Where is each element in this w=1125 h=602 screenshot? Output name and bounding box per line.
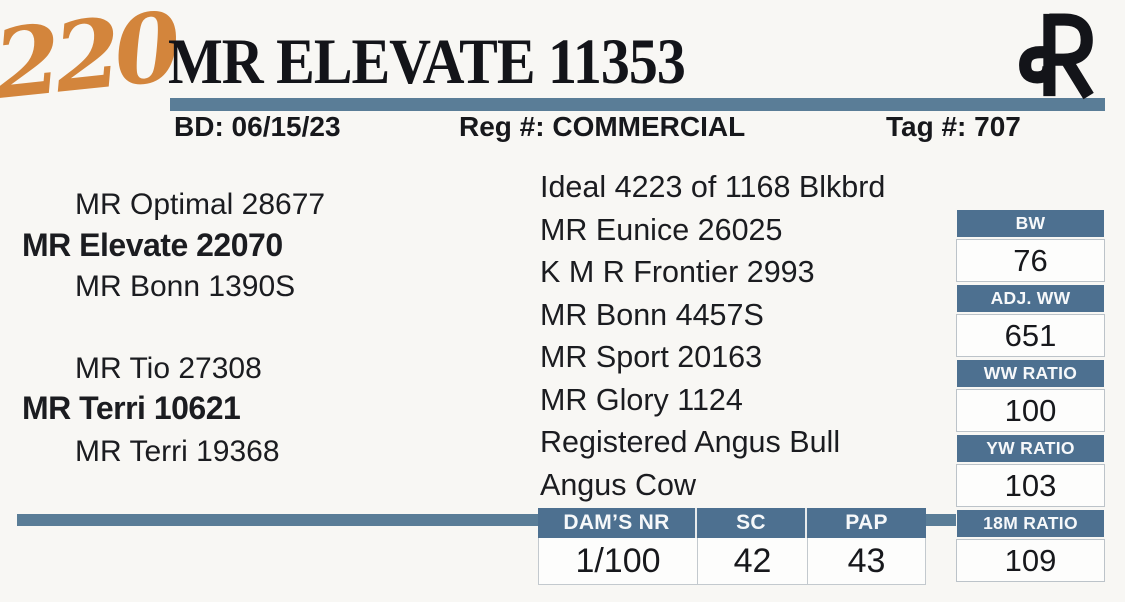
ancestry-line: MR Eunice 26025	[540, 209, 885, 252]
pedigree-dam: MR Terri 10621	[22, 391, 240, 425]
stat-header-bw: BW	[957, 210, 1104, 237]
pedigree-sire: MR Elevate 22070	[22, 228, 283, 262]
stat-value-adj-ww: 651	[956, 314, 1105, 357]
ancestry-line: Angus Cow	[540, 464, 885, 507]
ancestry-list: Ideal 4223 of 1168 Blkbrd MR Eunice 2602…	[540, 166, 885, 506]
dams-nr-column: DAM’S NR 1/100	[538, 508, 697, 585]
rafter-r-brand-icon	[1013, 10, 1097, 100]
pedigree-sire-sire: MR Optimal 28677	[75, 188, 325, 222]
pap-column: PAP 43	[807, 508, 926, 585]
ancestry-line: K M R Frontier 2993	[540, 251, 885, 294]
stats-table: BW 76 ADJ. WW 651 WW RATIO 100 YW RATIO …	[956, 210, 1105, 585]
lot-number: 220	[0, 0, 179, 113]
ancestry-line: MR Sport 20163	[540, 336, 885, 379]
pedigree-dam-sire: MR Tio 27308	[75, 352, 262, 386]
sc-column: SC 42	[697, 508, 807, 585]
page-title: MR ELEVATE 11353	[168, 26, 685, 97]
ancestry-line: MR Glory 1124	[540, 379, 885, 422]
pedigree-dam-dam: MR Terri 19368	[75, 435, 280, 469]
stat-value-18m-ratio: 109	[956, 539, 1105, 582]
stat-header-adj-ww: ADJ. WW	[957, 285, 1104, 312]
ancestry-line: Registered Angus Bull	[540, 421, 885, 464]
pap-value: 43	[807, 538, 926, 585]
stat-value-yw-ratio: 103	[956, 464, 1105, 507]
stat-header-ww-ratio: WW RATIO	[957, 360, 1104, 387]
header-info-row: BD: 06/15/23 Reg #: COMMERCIAL Tag #: 70…	[170, 111, 1105, 147]
tag-number: Tag #: 707	[886, 111, 1021, 143]
stat-value-bw: 76	[956, 239, 1105, 282]
stat-header-18m-ratio: 18M RATIO	[957, 510, 1104, 537]
ancestry-line: Ideal 4223 of 1168 Blkbrd	[540, 166, 885, 209]
birth-date: BD: 06/15/23	[174, 111, 341, 143]
stat-header-yw-ratio: YW RATIO	[957, 435, 1104, 462]
title-rule	[170, 98, 1105, 111]
registration-number: Reg #: COMMERCIAL	[459, 111, 745, 143]
stat-value-ww-ratio: 100	[956, 389, 1105, 432]
dams-nr-header: DAM’S NR	[538, 508, 697, 538]
sc-header: SC	[697, 508, 807, 538]
sc-value: 42	[697, 538, 807, 585]
dam-stats-table: DAM’S NR 1/100 SC 42 PAP 43	[538, 508, 926, 585]
pap-header: PAP	[807, 508, 926, 538]
dams-nr-value: 1/100	[538, 538, 697, 585]
ancestry-line: MR Bonn 4457S	[540, 294, 885, 337]
catalog-page: 220 MR ELEVATE 11353 BD: 06/15/23 Reg #:…	[0, 0, 1125, 602]
pedigree-sire-dam: MR Bonn 1390S	[75, 270, 295, 304]
